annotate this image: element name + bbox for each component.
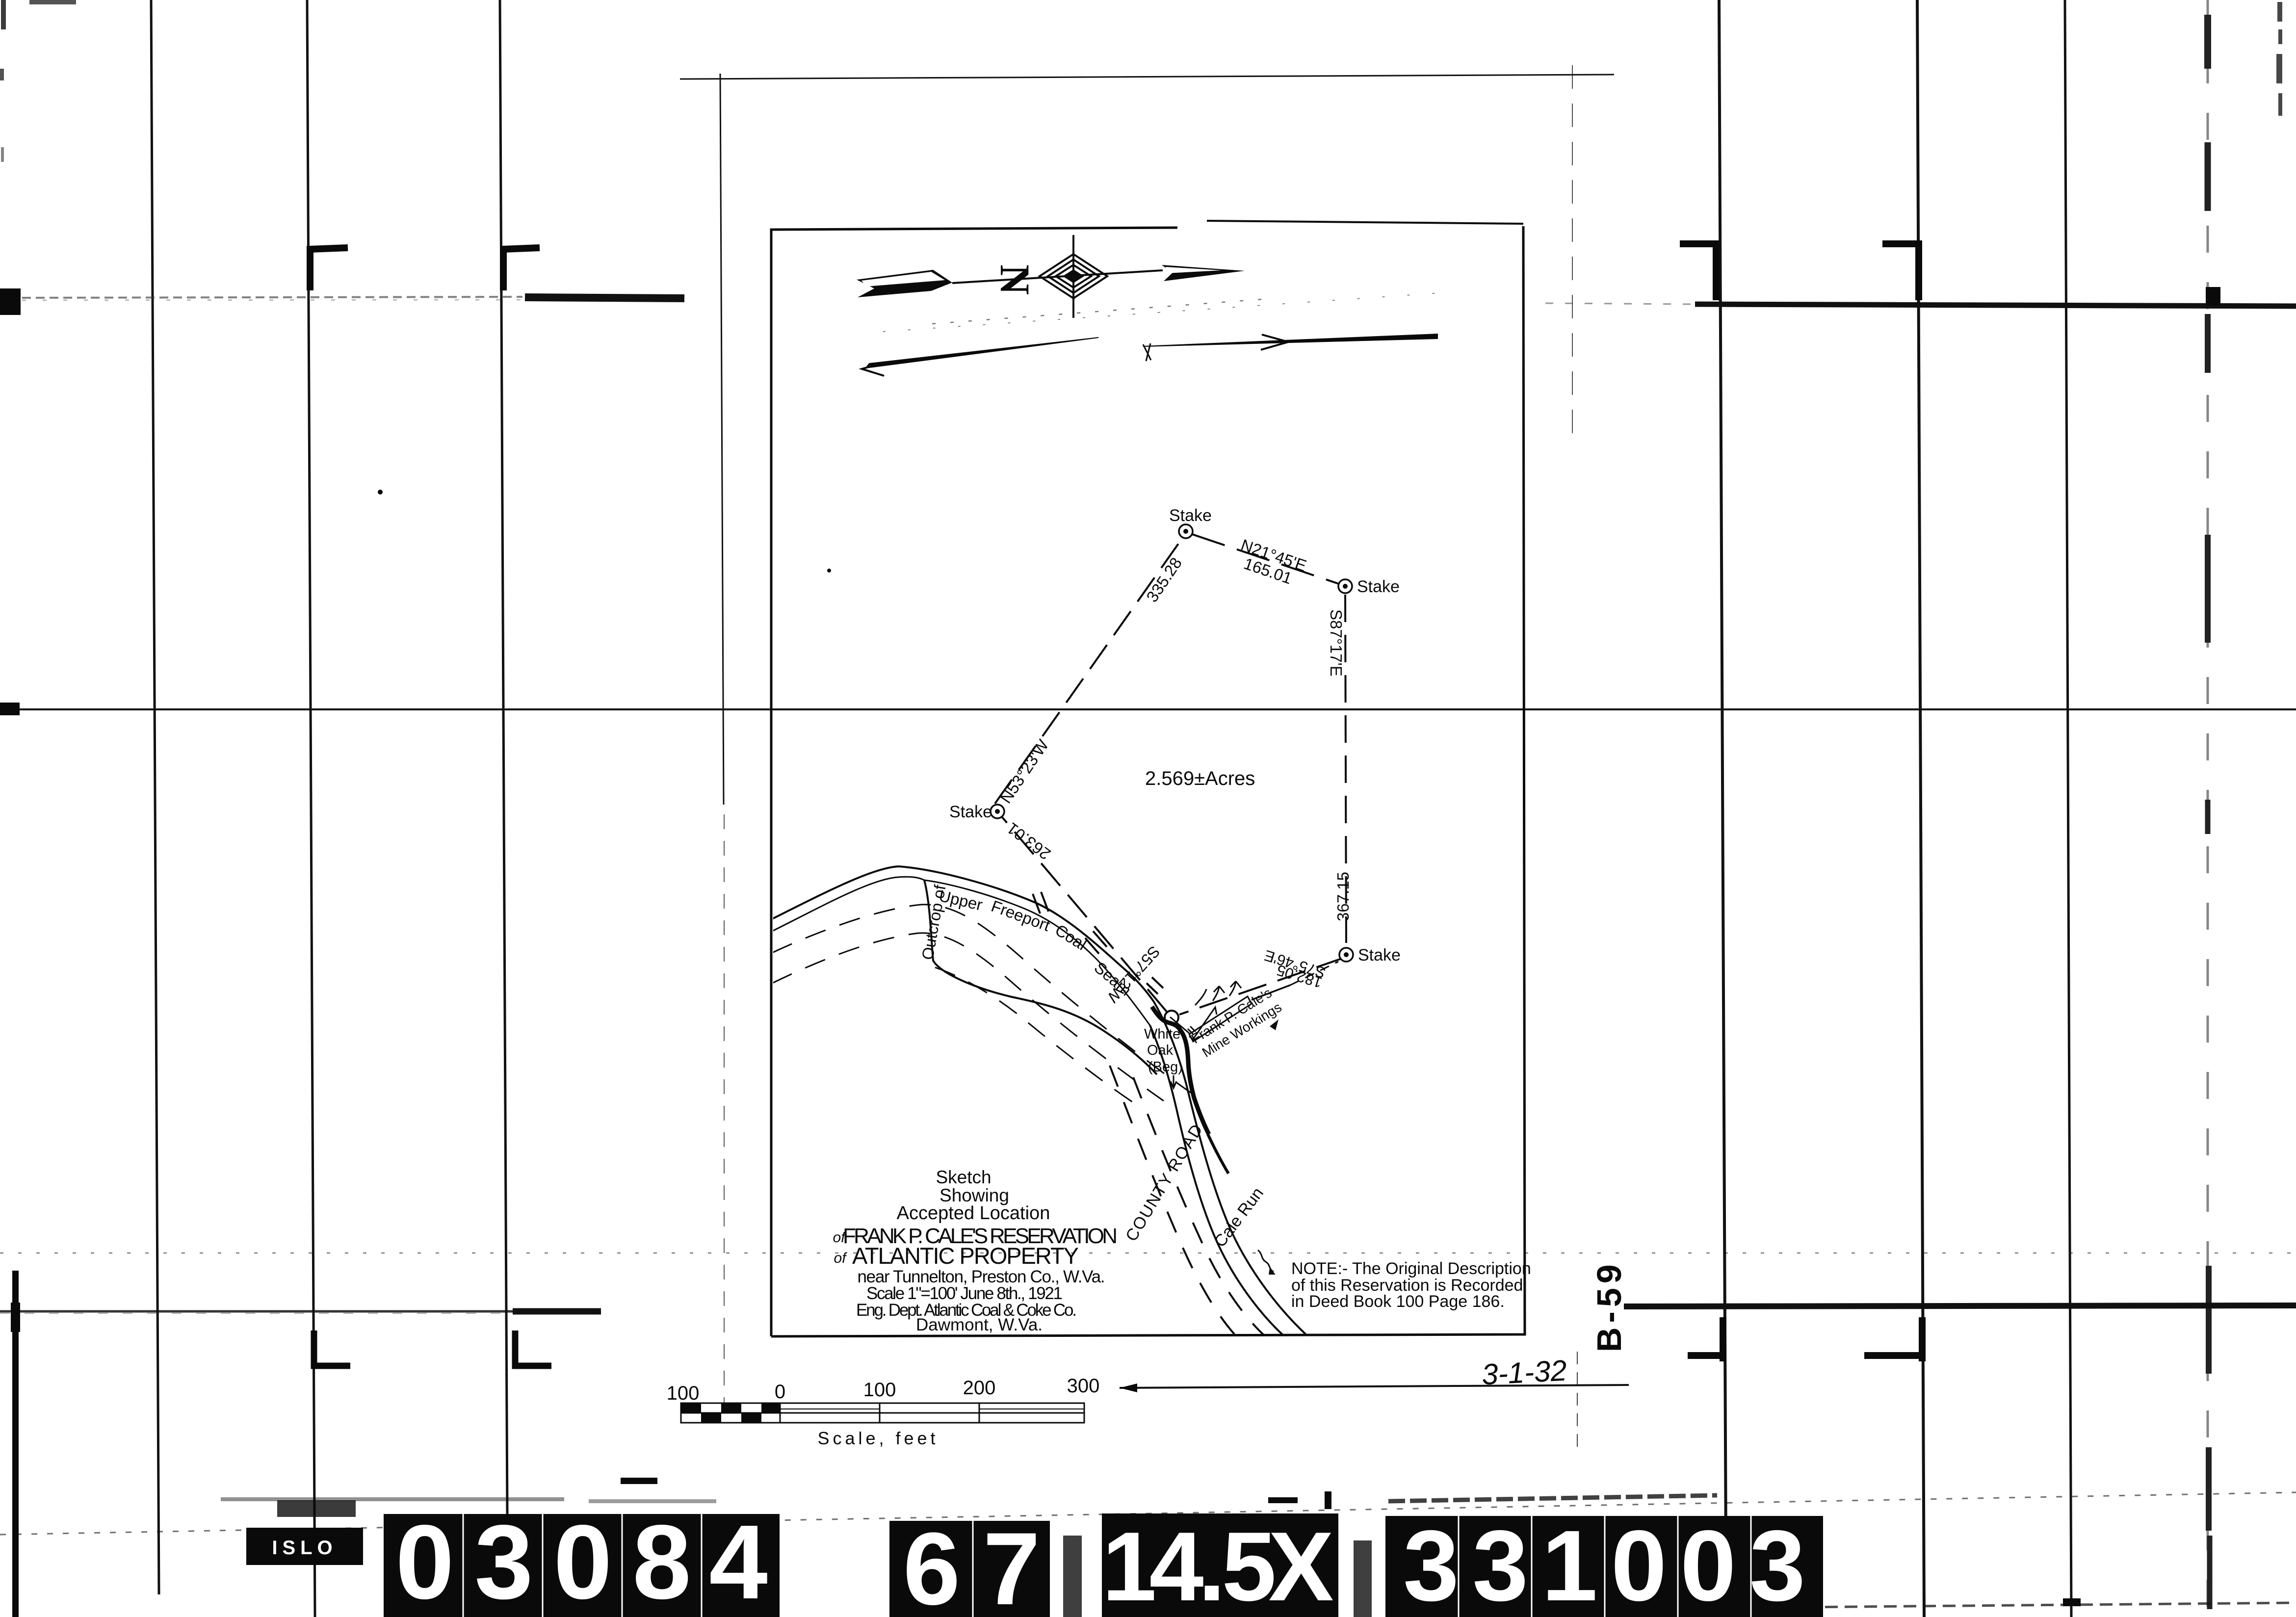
svg-text:0: 0: [553, 1503, 612, 1617]
svg-text:Stake: Stake: [1358, 946, 1401, 965]
svg-text:ATLANTIC PROPERTY: ATLANTIC PROPERTY: [852, 1243, 1079, 1269]
svg-text:6: 6: [903, 1511, 961, 1617]
svg-text:7: 7: [983, 1511, 1041, 1617]
svg-text:100: 100: [667, 1382, 700, 1404]
svg-text:in Deed Book 100 Page 186.: in Deed Book 100 Page 186.: [1291, 1292, 1505, 1311]
svg-text:8: 8: [632, 1503, 691, 1617]
svg-text:300: 300: [1067, 1375, 1100, 1397]
svg-text:3-1-32: 3-1-32: [1481, 1354, 1568, 1391]
svg-text:(Beg): (Beg): [1148, 1059, 1183, 1075]
svg-text:White: White: [1144, 1026, 1180, 1042]
svg-text:1: 1: [1102, 1512, 1156, 1617]
svg-text:S87°17'E: S87°17'E: [1327, 609, 1345, 677]
svg-text:4: 4: [709, 1503, 768, 1617]
svg-text:of: of: [834, 1250, 847, 1266]
svg-text:N: N: [991, 264, 1039, 295]
svg-text:Oak: Oak: [1147, 1043, 1174, 1058]
svg-text:B-59: B-59: [1590, 1260, 1628, 1352]
svg-text:Accepted Location: Accepted Location: [897, 1203, 1050, 1224]
svg-text:ISLO: ISLO: [272, 1537, 337, 1559]
svg-text:NOTE:- The Original Descriptio: NOTE:- The Original Description: [1291, 1259, 1531, 1278]
svg-text:Dawmont, W.Va.: Dawmont, W.Va.: [916, 1315, 1043, 1334]
svg-text:Showing: Showing: [939, 1185, 1009, 1205]
svg-text:367.15: 367.15: [1334, 872, 1352, 921]
svg-text:2.569±Acres: 2.569±Acres: [1145, 768, 1255, 789]
svg-text:0: 0: [775, 1381, 785, 1403]
svg-text:3: 3: [474, 1503, 533, 1617]
svg-text:0: 0: [395, 1503, 454, 1617]
svg-text:Stake: Stake: [949, 803, 992, 821]
svg-text:Sketch: Sketch: [936, 1167, 991, 1187]
svg-text:X: X: [1268, 1512, 1333, 1617]
svg-text:4: 4: [1149, 1512, 1203, 1617]
svg-text:100: 100: [863, 1379, 896, 1401]
svg-text:Stake: Stake: [1357, 577, 1400, 596]
svg-text:Scale, feet: Scale, feet: [817, 1428, 939, 1448]
svg-text:200: 200: [963, 1377, 996, 1399]
svg-text:Stake: Stake: [1169, 506, 1212, 525]
